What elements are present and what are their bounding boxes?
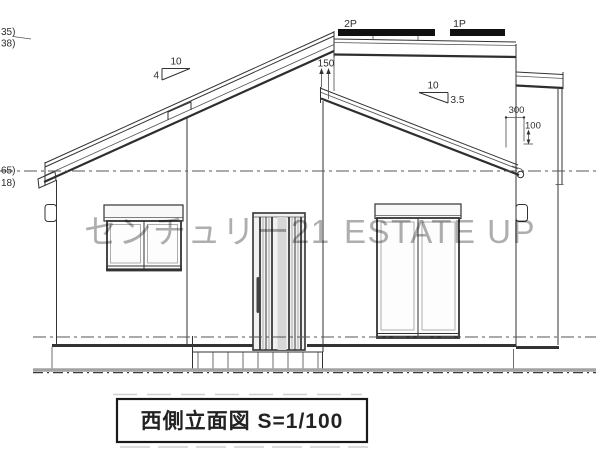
solar-panels xyxy=(338,29,505,40)
panel-label-1p: 1P xyxy=(453,18,466,30)
svg-text:150: 150 xyxy=(318,59,335,70)
dimension-100: 100 xyxy=(524,121,541,145)
svg-text:18): 18) xyxy=(1,178,15,189)
solar-panel-left xyxy=(338,29,435,36)
far-roof-band xyxy=(516,72,563,89)
svg-text:10: 10 xyxy=(427,81,439,92)
slope-marker-left: 10 4 xyxy=(153,57,190,82)
roof-left-slope xyxy=(38,31,334,188)
downspout-elbow-left xyxy=(45,205,57,222)
drawing-title: 西側立面図 S=1/100 xyxy=(141,409,344,433)
watermark-century21: センチュリー21 xyxy=(84,213,331,250)
panel-label-2p: 2P xyxy=(344,18,357,30)
ground-line xyxy=(33,370,596,373)
far-building-wall xyxy=(556,89,564,345)
svg-text:100: 100 xyxy=(525,121,541,132)
svg-text:10: 10 xyxy=(170,57,182,68)
svg-text:4: 4 xyxy=(153,71,159,82)
svg-text:38): 38) xyxy=(1,39,15,50)
svg-text:300: 300 xyxy=(509,105,525,116)
roof-top-band xyxy=(334,39,516,91)
level-labels-top: 35) 38) xyxy=(1,27,31,50)
svg-text:3.5: 3.5 xyxy=(451,95,465,106)
title-block: 西側立面図 S=1/100 xyxy=(113,395,368,448)
slope-marker-right: 10 3.5 xyxy=(419,81,465,107)
elevation-drawing: 2P 1P 150 10 4 10 3.5 300 100 xyxy=(0,0,600,450)
roof-right-slope xyxy=(320,87,524,178)
door-handle xyxy=(257,277,260,313)
level-labels-mid: 65) 18) xyxy=(1,166,15,190)
solar-panel-right xyxy=(450,29,505,36)
watermark-estate-up: ESTATE UP xyxy=(344,213,536,250)
dimension-300: 300 xyxy=(505,105,525,148)
svg-text:65): 65) xyxy=(1,166,15,177)
